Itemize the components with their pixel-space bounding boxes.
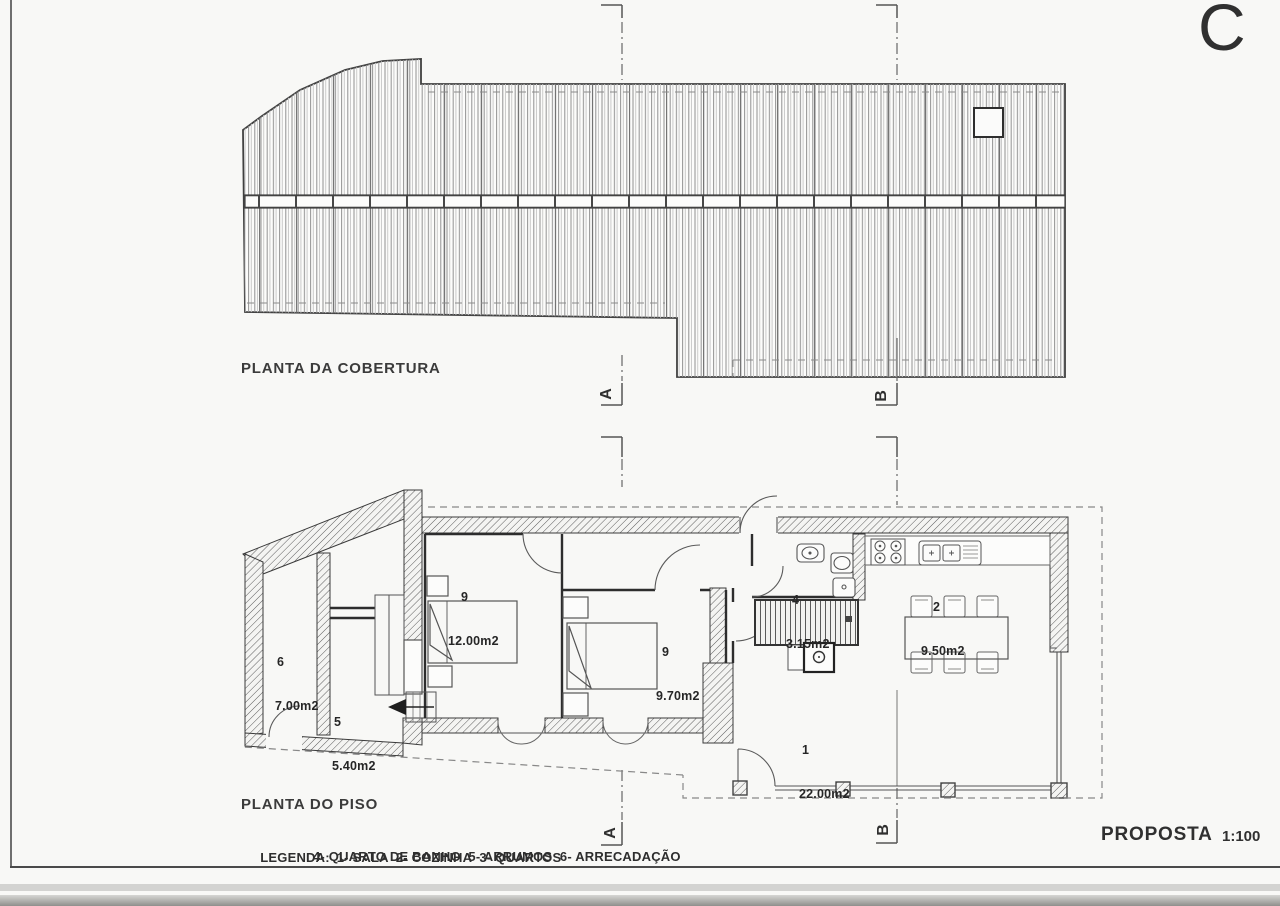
room-area: 12.00m2 (448, 634, 499, 649)
room-label-bedroom-large: 9 12.00m2 (448, 561, 499, 677)
sheet-frame-left (10, 0, 12, 866)
scan-shadow-band (0, 884, 1280, 891)
sheet-frame-bottom (10, 866, 1280, 868)
bed-symbol-small (563, 597, 657, 716)
room-number: 4 (786, 593, 830, 608)
glazing-post (1051, 783, 1067, 798)
room-number: 9 (448, 590, 499, 605)
room-number: 1 (799, 743, 850, 758)
shower-tray-icon (833, 578, 855, 597)
section-b-mid2-bracket (876, 437, 897, 457)
kitchen-fixtures (865, 536, 1050, 565)
section-a-mid2-bracket (601, 437, 622, 457)
room-area: 5.40m2 (332, 759, 376, 774)
roof-plan-title: PLANTA DA COBERTURA (241, 360, 441, 377)
section-letter-b-mid: B (873, 387, 891, 405)
drawing-scale: 1:100 (1222, 828, 1260, 845)
section-letter-a-mid: A (598, 385, 616, 403)
bedroom-large-door (523, 534, 562, 573)
glazing-post (733, 781, 747, 795)
drawing-linework (0, 0, 1280, 906)
roof-ridge (245, 195, 1065, 208)
section-letter-a-bottom: A (602, 824, 620, 842)
room-area: 7.00m2 (275, 699, 319, 714)
glazing (733, 652, 1067, 798)
proposal-label: PROPOSTA (1101, 824, 1213, 846)
room-label-bedroom-small: 9 9.70m2 (656, 616, 700, 732)
room-area: 9.50m2 (921, 644, 965, 659)
room-label-bathroom: 4 3.15m2 (786, 564, 830, 680)
room-area: 9.70m2 (656, 689, 700, 704)
revision-letter: C (1198, 0, 1246, 60)
room-number: 2 (921, 600, 965, 615)
stair-direction-arrow (388, 699, 406, 715)
roof-plan-drawing (243, 59, 1065, 377)
section-a-top-bracket (601, 5, 622, 18)
room-number: 5 (332, 715, 376, 730)
room-number: 6 (275, 655, 319, 670)
bathroom-door (752, 566, 783, 597)
room-label-living: 1 22.00m2 (799, 714, 850, 830)
bedroom-small-door (655, 545, 700, 590)
room-number: 9 (656, 645, 700, 660)
room-label-storeroom: 6 7.00m2 (275, 626, 319, 742)
room-label-kitchen: 2 9.50m2 (921, 571, 965, 687)
room-area: 22.00m2 (799, 787, 850, 802)
legend-line-2: 4- QUARTO DE BANHO 5- ARRUMOS 6- ARRECAD… (313, 849, 681, 864)
chimney (974, 108, 1003, 137)
room-label-storage: 5 5.40m2 (332, 686, 376, 802)
scan-edge-bottom (0, 895, 1280, 906)
room-area: 3.15m2 (786, 637, 830, 652)
drawing-sheet: C PLANTA DA COBERTURA PLANTA DO PISO LEG… (0, 0, 1280, 906)
section-letter-b-bottom: B (875, 821, 893, 839)
glazing-post (941, 783, 955, 797)
section-b-top-bracket (876, 5, 897, 18)
